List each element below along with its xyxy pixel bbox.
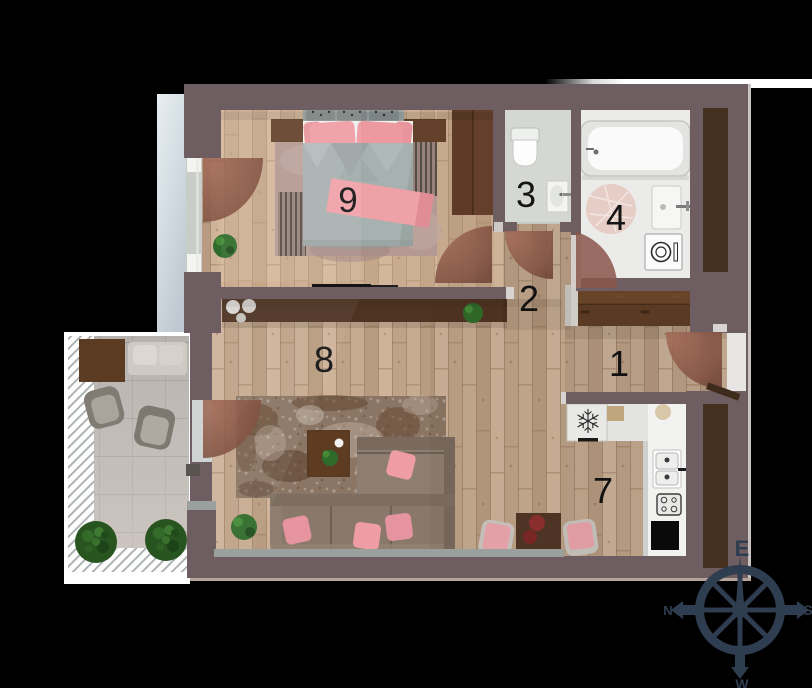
svg-text:N: N (663, 603, 672, 618)
svg-text:E: E (735, 536, 750, 561)
svg-text:4: 4 (606, 197, 626, 238)
svg-text:W: W (735, 676, 749, 688)
svg-text:S: S (803, 602, 812, 618)
svg-text:3: 3 (516, 174, 536, 215)
